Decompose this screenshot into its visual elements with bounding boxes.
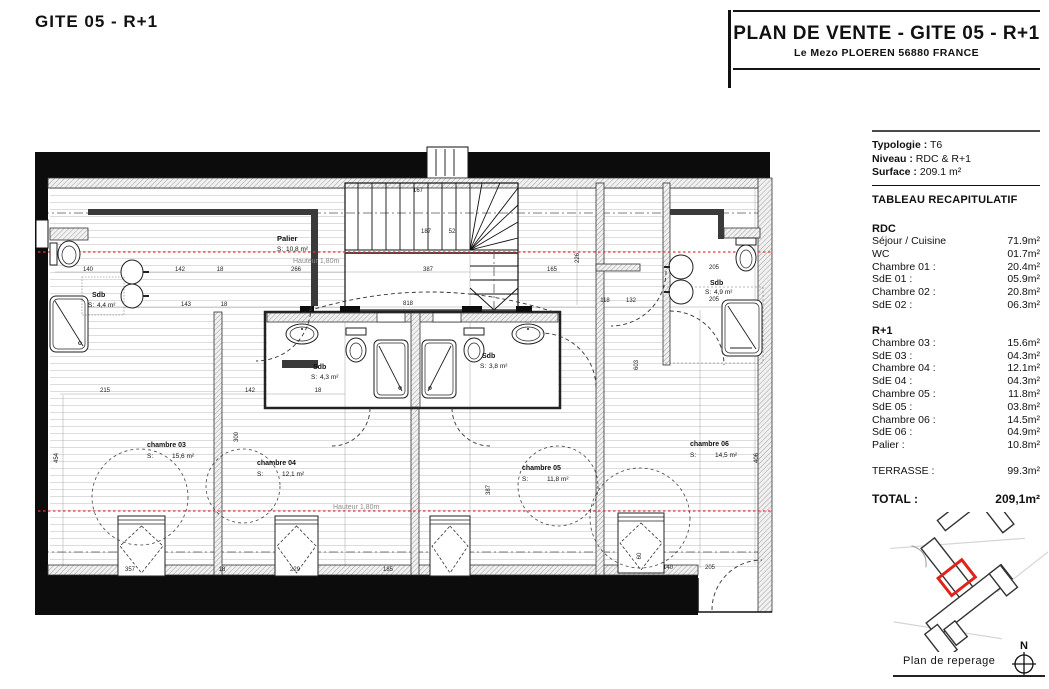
room-area: 4,3 m² <box>320 374 339 381</box>
section-rdc-title: RDC <box>872 223 1040 235</box>
section-rdc: RDC Séjour / Cuisine71.9m² WC01.7m² Cham… <box>872 223 1040 312</box>
surface-label: Surface : <box>872 166 917 178</box>
dim-label: 52 <box>449 229 456 235</box>
room-area: 15,6 m² <box>172 453 195 460</box>
room-area: 10,8 m² <box>286 246 309 253</box>
room-area-prefix: S: <box>522 476 528 483</box>
dim-label: 387 <box>423 267 434 273</box>
dim-label: 18 <box>219 567 226 573</box>
typologie-label: Typologie : <box>872 139 927 151</box>
key-plan-building-l <box>937 512 1013 560</box>
dim-label: 118 <box>600 298 610 304</box>
terrasse-row: TERRASSE : 99.3m² <box>872 465 1040 478</box>
room-area: 3,8 m² <box>489 363 508 370</box>
dim-label: 454 <box>54 452 60 463</box>
table-row: Chambre 03 :15.6m² <box>872 337 1040 350</box>
room-label-chambre-04: chambre 04 <box>257 460 296 467</box>
reperage-label: Plan de reperage <box>903 655 995 667</box>
key-plan <box>890 512 1048 652</box>
dim-label: 215 <box>100 388 111 394</box>
dim-label: 205 <box>709 297 720 303</box>
niveau-value: RDC & R+1 <box>916 153 971 165</box>
dim-label: 142 <box>245 388 256 394</box>
table-row: SdE 01 :05.9m² <box>872 273 1040 286</box>
room-area: 12,1 m² <box>282 471 305 478</box>
stair-opening <box>427 147 468 178</box>
table-row: SdE 03 :04.3m² <box>872 350 1040 363</box>
dim-label: 387 <box>486 484 492 495</box>
terrasse-value: 99.3m² <box>1007 465 1040 478</box>
sidebar-rule-mid <box>872 185 1040 187</box>
dim-label: 140 <box>83 267 94 273</box>
dim-label: 205 <box>709 265 720 271</box>
room-area-prefix: S: <box>690 452 696 459</box>
dim-label: 143 <box>181 302 192 308</box>
dim-label: 18 <box>221 302 228 308</box>
table-row: Chambre 04 :12.1m² <box>872 362 1040 375</box>
room-label-sdb-right: Sdb <box>710 280 723 287</box>
dim-label: 226 <box>575 252 581 263</box>
dim-label: 406 <box>754 452 760 463</box>
section-r1-title: R+1 <box>872 325 1040 337</box>
room-area-prefix: S: <box>311 374 317 381</box>
room-area-prefix: S: <box>147 453 153 460</box>
table-row: Palier :10.8m² <box>872 439 1040 452</box>
dim-label: 818 <box>403 301 414 307</box>
north-label: N <box>1020 640 1028 652</box>
table-row: SdE 05 :03.8m² <box>872 401 1040 414</box>
unit-info: Typologie : T6 Niveau : RDC & R+1 Surfac… <box>872 139 1040 180</box>
niveau-label: Niveau : <box>872 153 913 165</box>
dim-label: 357 <box>125 567 136 573</box>
hauteur-annotation-upper: Hauteur 1,80m <box>293 258 339 265</box>
room-label-chambre-05: chambre 05 <box>522 465 561 472</box>
room-label-palier: Palier <box>277 234 298 243</box>
table-row: Chambre 01 :20.4m² <box>872 261 1040 274</box>
table-row: WC01.7m² <box>872 248 1040 261</box>
table-row: Chambre 05 :11.8m² <box>872 388 1040 401</box>
sidebar-rule-top <box>872 130 1040 132</box>
table-row: SdE 06 :04.9m² <box>872 426 1040 439</box>
summary-sidebar: Typologie : T6 Niveau : RDC & R+1 Surfac… <box>872 130 1040 506</box>
room-label-sdb-center-left: Sdb <box>313 364 326 371</box>
room-area: 4,9 m² <box>714 289 733 296</box>
table-row: Chambre 02 :20.8m² <box>872 286 1040 299</box>
room-label-chambre-03: chambre 03 <box>147 442 186 449</box>
table-row: SdE 02 :06.3m² <box>872 299 1040 312</box>
dim-label: 205 <box>705 565 716 571</box>
room-area-prefix: S: <box>257 471 263 478</box>
dim-label: 18 <box>315 388 322 394</box>
table-row: SdE 04 :04.3m² <box>872 375 1040 388</box>
table-row: Chambre 06 :14.5m² <box>872 414 1040 427</box>
room-label-chambre-06: chambre 06 <box>690 441 729 448</box>
dim-label: 165 <box>547 267 558 273</box>
typologie-value: T6 <box>930 139 942 151</box>
dim-label: 603 <box>634 359 640 370</box>
room-area: 14,5 m² <box>715 452 738 459</box>
dim-label: 18 <box>217 267 224 273</box>
total-row: TOTAL : 209,1m² <box>872 493 1040 506</box>
room-area-prefix: S: <box>480 363 486 370</box>
dim-label: 140 <box>663 565 674 571</box>
table-title: TABLEAU RECAPITULATIF <box>872 194 1040 206</box>
left-wall-window <box>36 220 48 248</box>
dim-label: 229 <box>290 567 301 573</box>
dim-label: 300 <box>234 431 240 442</box>
total-label: TOTAL : <box>872 493 918 506</box>
room-area: 4,4 m² <box>97 302 116 309</box>
dim-label: 60 <box>637 552 643 559</box>
dim-label: 266 <box>291 267 302 273</box>
hauteur-annotation-lower: Hauteur 1,80m <box>333 504 379 511</box>
dim-label: 132 <box>626 298 637 304</box>
dim-label: 142 <box>175 267 186 273</box>
surface-value: 209.1 m² <box>920 166 961 178</box>
terrasse-label: TERRASSE : <box>872 465 934 478</box>
north-compass-icon: N <box>1006 638 1044 678</box>
room-label-sdb-center-right: Sdb <box>482 353 495 360</box>
room-area-prefix: S: <box>277 246 283 253</box>
dim-label: 167 <box>413 188 424 194</box>
room-area: 11,8 m² <box>547 476 569 483</box>
dim-label: 185 <box>383 567 394 573</box>
room-area-prefix: S: <box>705 289 711 296</box>
table-row: Séjour / Cuisine71.9m² <box>872 235 1040 248</box>
section-r1: R+1 Chambre 03 :15.6m² SdE 03 :04.3m² Ch… <box>872 325 1040 452</box>
dim-label: 187 <box>421 229 432 235</box>
total-value: 209,1m² <box>995 493 1040 506</box>
reperage-rule <box>893 675 1045 677</box>
room-area-prefix: S: <box>88 302 94 309</box>
room-label-sdb-left: Sdb <box>92 292 105 299</box>
